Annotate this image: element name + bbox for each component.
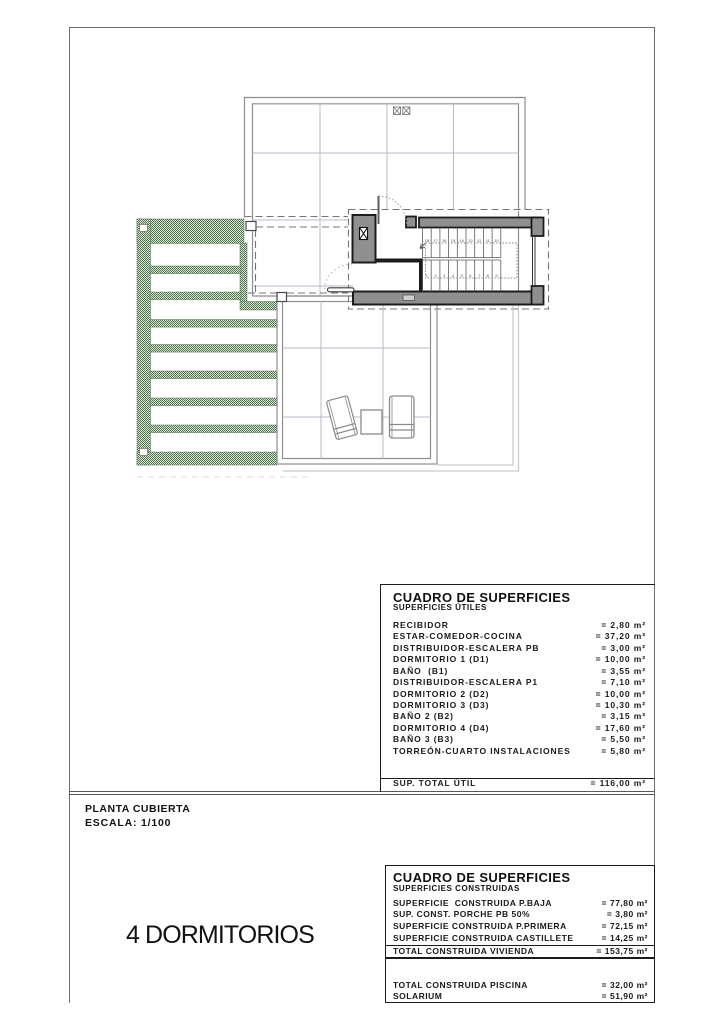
svg-text:8: 8: [487, 273, 490, 278]
svg-text:12: 12: [477, 238, 482, 243]
svg-text:3: 3: [443, 273, 446, 278]
svg-text:5: 5: [461, 273, 464, 278]
svg-text:7: 7: [478, 273, 481, 278]
svg-text:2: 2: [434, 273, 437, 278]
svg-text:18: 18: [425, 238, 430, 243]
svg-text:11: 11: [486, 238, 491, 243]
svg-text:4: 4: [452, 273, 455, 278]
svg-text:14: 14: [459, 238, 464, 243]
svg-text:1: 1: [426, 273, 429, 278]
svg-text:16: 16: [442, 238, 447, 243]
svg-text:6: 6: [469, 273, 472, 278]
svg-text:10: 10: [494, 238, 499, 243]
svg-text:15: 15: [451, 238, 456, 243]
svg-text:17: 17: [433, 238, 438, 243]
svg-text:13: 13: [468, 238, 473, 243]
svg-text:9: 9: [495, 273, 498, 278]
